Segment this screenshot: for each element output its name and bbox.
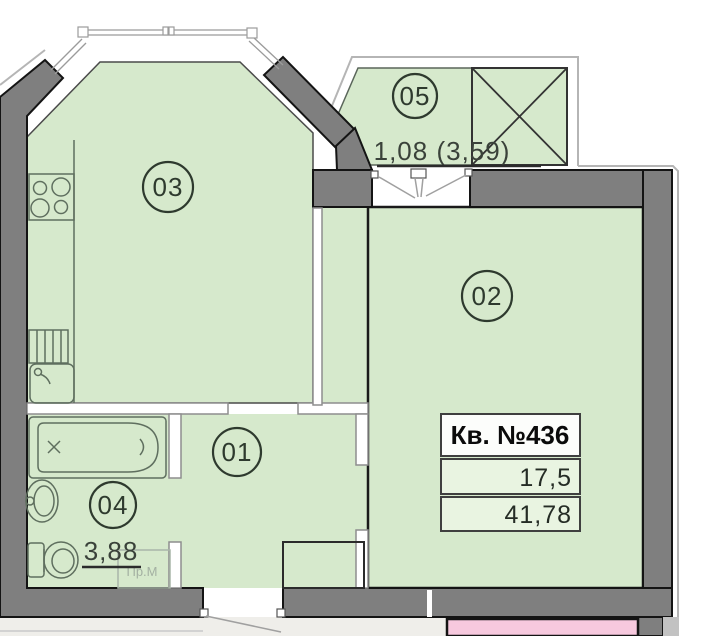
adjacent-apartment-room: [447, 619, 638, 636]
right-wall: [643, 170, 672, 617]
partition-hall-room02-lower: [356, 530, 368, 588]
living-area-value: 17,5: [519, 464, 572, 492]
room-01-label: 01: [222, 437, 253, 467]
bottom-right-wall-piece: [638, 617, 663, 636]
bottom-right-wall-edge: [663, 617, 679, 636]
bathroom-area-text: 3,88: [84, 536, 139, 566]
partition-kitchen-bath: [27, 403, 228, 414]
partition-bath-hall-lower: [169, 542, 181, 588]
floor-strip: [322, 208, 368, 407]
apartment-number: Кв. №436: [451, 420, 570, 450]
window-center-tick-1: [163, 27, 168, 35]
apartment-info-table: Кв. №436 17,5 41,78: [441, 414, 580, 531]
room-03-label: 03: [153, 172, 184, 202]
partition-kitchen-right: [313, 208, 322, 405]
window-center-tick-2: [169, 27, 174, 35]
partition-hall-top: [298, 403, 368, 414]
balcony-left-wall-block: [313, 170, 372, 207]
partition-bath-hall-upper: [169, 414, 181, 478]
balcony-area-text: 1,08 (3,59): [374, 136, 511, 166]
room-04-label: 04: [98, 490, 129, 520]
total-area-value: 41,78: [504, 501, 572, 529]
kitchen-room-03-floor: [27, 62, 313, 403]
room-05-label: 05: [400, 81, 431, 111]
bottom-wall-right: [283, 588, 672, 617]
window-cap-left: [78, 27, 88, 37]
top-wall-right: [470, 170, 672, 207]
floor-plan-svg: Пр.М 03 05 02 01 04 1,08 (3,59) 3,88 Кв.…: [0, 0, 710, 636]
partition-hall-room02-upper: [356, 414, 368, 465]
floor-plan: Пр.М 03 05 02 01 04 1,08 (3,59) 3,88 Кв.…: [0, 0, 710, 636]
wall-joint-slot: [427, 590, 432, 617]
window-cap-right: [247, 28, 257, 38]
room-02-label: 02: [472, 281, 503, 311]
